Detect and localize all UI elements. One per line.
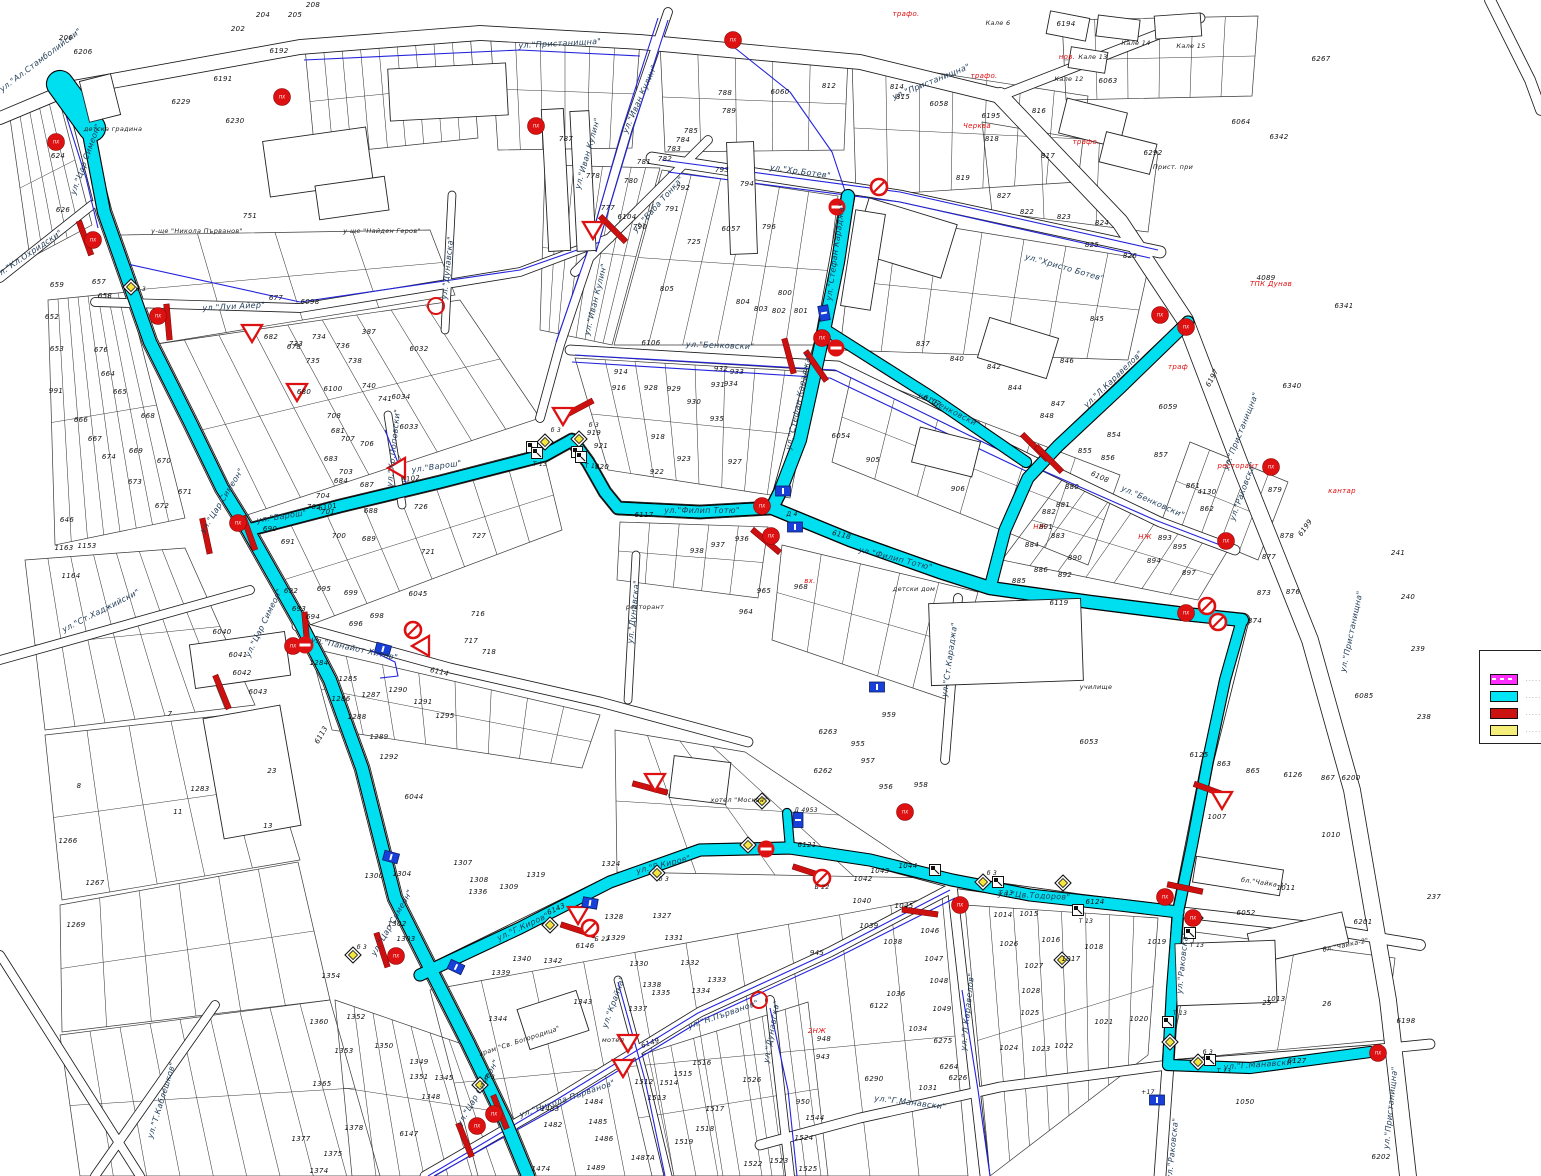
parcel-number-label: 1307 [453, 859, 472, 867]
parcel-number-label: 848 [1040, 412, 1055, 420]
hydrant-marker-label: ПХ [1162, 895, 1169, 901]
parcel-number-label: 814 [890, 83, 904, 91]
parcel-number-label: 819 [956, 174, 971, 182]
parcel-number-label: 1290 [388, 686, 407, 694]
parcel-number-label: 26 [1322, 1000, 1332, 1008]
road-surface [0, 955, 140, 1176]
parcel-number-label: 1292 [379, 753, 398, 761]
parcel-number-label: 700 [332, 532, 347, 540]
parcel-number-label: 1340 [512, 955, 531, 963]
utility-label-red: трафо. [892, 10, 919, 18]
street-name-label: ул."Филип Тотю" [663, 506, 740, 515]
parcel-number-label: 1302 [387, 920, 406, 928]
parcel-number-label: 682 [264, 333, 279, 341]
parcel-number-label: 672 [155, 502, 170, 510]
parcel-number-label: 1482 [543, 1121, 562, 1129]
parcel-number-label: 6033 [399, 423, 418, 431]
building [189, 632, 290, 689]
parcel-number-label: 6342 [1269, 133, 1288, 141]
parcel-number-label: 1327 [652, 912, 671, 920]
parcel-number-label: 725 [687, 238, 702, 246]
parcel-number-label: 1333 [707, 976, 726, 984]
parcel-number-label: 1163 [54, 544, 73, 552]
parcel-number-label: 885 [1012, 577, 1027, 585]
legend-row-route-type-4: .......... [1490, 722, 1541, 739]
parcel-number-label: 1034 [908, 1025, 927, 1033]
parcel-number-label: 862 [1200, 505, 1215, 513]
hydrant-marker-label: ПХ [393, 954, 400, 960]
parcel-number-label: 208 [306, 1, 321, 9]
symbol-code-label: Т 13 [1190, 942, 1204, 949]
parcel-number-label: 670 [157, 457, 172, 465]
parcel-number-label: 905 [866, 456, 881, 464]
parcel-number-label: 1042 [853, 875, 872, 883]
parcel-number-label: 840 [950, 355, 965, 363]
parcel-number-label: 738 [348, 357, 363, 365]
parcel-number-label: 1007 [1207, 813, 1226, 821]
parcel-number-label: 6108 [1090, 470, 1111, 485]
hydrant-marker-label: ПХ [759, 504, 766, 510]
parcel-number-label: 920 [595, 463, 610, 471]
parcel-number-label: 6113 [313, 725, 329, 745]
parcel-number-label: 1485 [588, 1118, 607, 1126]
parcel-number-label: 948 [817, 1035, 832, 1043]
parcel-number-label: 6045 [408, 590, 427, 598]
parcel-number-label: 664 [101, 370, 115, 378]
parcel-number-label: 837 [916, 340, 931, 348]
parcel-number-label: 1036 [886, 990, 905, 998]
building [541, 109, 570, 252]
parcel-number-label: 877 [1262, 553, 1277, 561]
parcel-number-label: 1483 [540, 1105, 559, 1113]
parcel-number-label: 1484 [584, 1098, 603, 1106]
parcel-number-label: 202 [231, 25, 246, 33]
parcel-number-label: 1164 [61, 572, 80, 580]
parcel-number-label: 863 [1217, 760, 1231, 768]
parcel-number-label: 1348 [421, 1093, 440, 1101]
parcel-number-label: 1338 [642, 981, 661, 989]
parcel-number-label: 894 [1147, 557, 1161, 565]
parcel-number-label: 751 [243, 212, 257, 220]
parcel-number-label: 855 [1078, 447, 1093, 455]
parcel-number-label: 812 [822, 82, 837, 90]
parcel-number-label: 6124 [1085, 898, 1104, 906]
parcel-number-label: 6201 [1353, 918, 1372, 926]
hydrant-box-icon [1156, 1097, 1158, 1103]
parcel-number-label: 1474 [531, 1165, 550, 1173]
parcel-number-label: 13 [263, 822, 273, 830]
yield-sign-icon [553, 408, 573, 425]
parcel-number-label: 6060 [770, 88, 789, 96]
map-svg[interactable]: ПХПХПХПХПХПХПХПХПХПХПХПХПХПХПХПХПХПХПХПХ… [0, 0, 1541, 1176]
parcel-number-label: 1365 [312, 1080, 331, 1088]
parcel-number-label: 1519 [674, 1138, 693, 1146]
parcel-block [965, 905, 1158, 1176]
parcel-number-label: 1266 [58, 837, 77, 845]
parcel-number-label: 856 [1101, 454, 1116, 462]
parcel-number-label: 1345 [434, 1074, 453, 1082]
parcel-number-label: 950 [796, 1098, 811, 1106]
hydrant-box-icon [782, 488, 784, 494]
parcel-number-label: 6040 [212, 628, 231, 636]
hydrant-marker-label: ПХ [1183, 611, 1190, 617]
parcel-number-label: 1017 [1061, 955, 1080, 963]
road-surface [1490, 0, 1541, 110]
parcel-number-label: 1377 [291, 1135, 310, 1143]
parcel-number-label: 1337 [628, 1005, 647, 1013]
parcel-number-label: 6194 [1056, 20, 1075, 28]
parcel-number-label: 1378 [344, 1124, 363, 1132]
parcel-number-label: 718 [482, 648, 497, 656]
parcel-number-label: 6117 [634, 511, 653, 519]
parcel-number-label: 4089 [1256, 274, 1275, 282]
parcel-number-label: 6230 [225, 117, 244, 125]
parcel-number-label: 826 [1123, 252, 1138, 260]
parcel-number-label: 646 [60, 516, 75, 524]
parcel-number-label: 6199 [1297, 518, 1315, 538]
parcel-number-label: 823 [1057, 213, 1071, 221]
parcel-number-label: 1522 [743, 1160, 762, 1168]
parcel-number-label: 1517 [705, 1105, 724, 1113]
parcel-number-label: 6202 [1371, 1153, 1390, 1161]
parcel-number-label: 1353 [334, 1047, 353, 1055]
parcel-line [848, 281, 1139, 310]
legend-label: .......... [1526, 728, 1541, 734]
map-viewport[interactable]: ПХПХПХПХПХПХПХПХПХПХПХПХПХПХПХПХПХПХПХПХ… [0, 0, 1541, 1176]
parcel-number-label: 804 [736, 298, 750, 306]
parcel-number-label: 6122 [869, 1002, 888, 1010]
parcel-number-label: 933 [730, 368, 744, 376]
street-name-label: ул."Бенковски" [685, 340, 755, 351]
parcel-number-label: 6034 [391, 393, 410, 401]
parcel-number-label: 6226 [948, 1074, 967, 1082]
parcel-number-label: 704 [316, 492, 330, 500]
parcel-number-label: 1351 [409, 1073, 428, 1081]
parcel-number-label: 1018 [1084, 943, 1103, 951]
symbol-code-label: б 3 [551, 427, 561, 434]
parcel-number-label: 6264 [939, 1063, 958, 1071]
landmark-label: детски дом [892, 585, 935, 593]
parcel-number-label: 701 [321, 508, 335, 516]
parcel-number-label: 1349 [409, 1058, 428, 1066]
parcel-number-label: 6058 [929, 100, 948, 108]
parcel-number-label: 6195 [981, 112, 1000, 120]
parcel-number-label: 788 [718, 89, 733, 97]
street-name-label: ул."Пристанищна" [1338, 590, 1364, 674]
parcel-number-label: 959 [882, 711, 897, 719]
parcel-number-label: 1046 [920, 927, 939, 935]
building [1096, 15, 1140, 41]
landmark-label: у-ще "Никола Първанов" [150, 227, 243, 235]
legend-swatch-dash [1492, 678, 1516, 680]
parcel-number-label: 240 [1401, 593, 1416, 601]
parcel-number-label: 674 [102, 453, 116, 461]
no-entry-sign-icon [761, 848, 772, 851]
parcel-number-label: 6267 [1311, 55, 1330, 63]
parcel-number-label: 6098 [300, 298, 319, 306]
parcel-number-label: 827 [997, 192, 1012, 200]
parcel-number-label: 1049 [932, 1005, 951, 1013]
parcel-number-label: 932 [714, 365, 729, 373]
utility-label-red: 2НЖ [808, 1027, 826, 1035]
utility-label-red: Черква [963, 122, 991, 130]
parcel-number-label: 6229 [171, 98, 190, 106]
legend-label: .......... [1526, 711, 1541, 717]
parcel-number-label: 687 [360, 481, 375, 489]
parcel-number-label: 707 [341, 435, 356, 443]
closure-bar-icon [782, 338, 797, 374]
parcel-number-label: 955 [851, 740, 866, 748]
hydrant-marker-label: ПХ [491, 1112, 498, 1118]
parcel-number-label: 6119 [1049, 599, 1068, 607]
parcel-number-label: 785 [684, 127, 699, 135]
parcel-number-label: 930 [687, 398, 702, 406]
utility-label-red: трафо. [970, 72, 997, 80]
parcel-number-label: 204 [256, 11, 270, 19]
parcel-number-label: 805 [660, 285, 675, 293]
symbol-code-label: Т 13 [533, 461, 547, 468]
legend-swatch-route-type-3 [1490, 708, 1518, 719]
parcel-number-label: 668 [141, 412, 156, 420]
parcel-number-label: 238 [1417, 713, 1432, 721]
landmark-label: училище [1079, 683, 1113, 691]
hydrant-marker-label: ПХ [533, 124, 540, 130]
parcel-number-label: 897 [1182, 569, 1197, 577]
parcel-number-label: 6032 [409, 345, 428, 353]
parcel-number-label: 957 [861, 757, 876, 765]
parcel-number-label: 6044 [404, 793, 423, 801]
parcel-number-label: 706 [360, 440, 375, 448]
parcel-number-label: 1486 [594, 1135, 613, 1143]
parcel-number-label: 6147 [399, 1130, 418, 1138]
parcel-number-label: 1328 [604, 913, 623, 921]
parcel-number-label: 1515 [673, 1070, 692, 1078]
parcel-number-label: 991 [49, 387, 63, 395]
parcel-number-label: 854 [1107, 431, 1121, 439]
street-name-label: ул."Дунавска" [440, 236, 456, 301]
parcel-number-label: 803 [754, 305, 768, 313]
parcel-number-label: 1020 [1129, 1015, 1148, 1023]
valve-box-icon [577, 453, 581, 457]
landmark-label: хотел "Москва" [710, 796, 768, 804]
parcel-number-label: 659 [50, 281, 65, 289]
parcel-number-label: 789 [722, 107, 737, 115]
parcel-number-label: 793 [715, 166, 729, 174]
parcel-number-label: 824 [1095, 219, 1109, 227]
parcel-number-label: 684 [334, 477, 348, 485]
parcel-number-label: 844 [1008, 384, 1022, 392]
parcel-number-label: 881 [1056, 501, 1070, 509]
parcel-number-label: 717 [464, 637, 479, 645]
hydrant-marker-label: ПХ [768, 534, 775, 540]
parcel-number-label: 1015 [1019, 910, 1038, 918]
landmark-label: Кале 15 [1176, 42, 1205, 50]
parcel-number-label: 6290 [864, 1075, 883, 1083]
parcel-number-label: 1525 [798, 1165, 817, 1173]
hydrant-marker-label: ПХ [1183, 325, 1190, 331]
symbol-code-label: б 3 [1203, 1049, 1213, 1056]
parcel-number-label: 716 [471, 610, 486, 618]
landmark-label: Кале 14 [1121, 39, 1150, 47]
parcel-number-label: 893 [1158, 534, 1172, 542]
parcel-number-label: 1047 [924, 955, 943, 963]
parcel-number-label: 796 [762, 223, 777, 231]
landmark-label: Кале 12 [1054, 75, 1083, 83]
parcel-number-label: 846 [1060, 357, 1075, 365]
parcel-line [978, 987, 1154, 1041]
parcel-number-label: 1289 [369, 733, 388, 741]
parcel-number-label: 1284 [309, 659, 328, 667]
hydrant-marker-label: ПХ [902, 810, 909, 816]
parcel-number-label: 23 [267, 767, 277, 775]
parcel-number-label: 6085 [1354, 692, 1373, 700]
parcel-number-label: 1360 [309, 1018, 328, 1026]
hydrant-marker-label: ПХ [1375, 1051, 1382, 1057]
utility-label-red: трафо. [1072, 138, 1099, 146]
no-entry-sign-icon [831, 347, 842, 350]
symbol-code-label: +17 [1141, 1089, 1155, 1096]
valve-box-icon [1074, 906, 1078, 910]
parcel-number-label: 692 [284, 587, 299, 595]
hydrant-marker-label: ПХ [957, 903, 964, 909]
parcel-number-label: 937 [711, 541, 726, 549]
parcel-number-label: 1040 [852, 897, 871, 905]
parcel-number-label: 1344 [488, 1015, 507, 1023]
parcel-number-label: 6292 [1143, 149, 1162, 157]
parcel-number-label: 938 [690, 547, 705, 555]
parcel-number-label: 1516 [692, 1059, 711, 1067]
parcel-number-label: 735 [306, 357, 321, 365]
parcel-number-label: 1044 [898, 862, 917, 870]
parcel-number-label: 387 [362, 328, 377, 336]
symbol-code-label: б 3 [485, 1074, 495, 1081]
hydrant-marker-label: ПХ [1157, 313, 1164, 319]
parcel-number-label: 1027 [1024, 962, 1043, 970]
parcel-number-label: 816 [1032, 107, 1047, 115]
parcel-number-label: 1011 [1276, 884, 1295, 892]
parcel-number-label: 1374 [309, 1167, 328, 1175]
building [203, 705, 301, 839]
parcel-number-label: 6127 [1287, 1057, 1306, 1065]
parcel-number-label: 652 [45, 313, 60, 321]
street-name-label: ул."Г.Киров" [495, 911, 550, 943]
hydrant-marker-label: ПХ [1268, 465, 1275, 471]
yield-sign-icon [1212, 792, 1232, 809]
parcel-number-label: 916 [612, 384, 627, 392]
parcel-number-label: 818 [985, 135, 1000, 143]
hydrant-marker-label: ПХ [90, 238, 97, 244]
parcel-number-label: 802 [772, 307, 787, 315]
parcel-number-label: 6054 [831, 432, 850, 440]
parcel-number-label: 1039 [859, 922, 878, 930]
symbol-code-label: Т 13 [1079, 918, 1093, 925]
building [1154, 13, 1201, 39]
parcel-number-label: 6341 [1334, 302, 1353, 310]
legend-label: .......... [1526, 694, 1541, 700]
legend-label: .......... [1526, 677, 1541, 683]
parcel-number-label: 958 [914, 781, 929, 789]
parcel-number-label: 653 [50, 345, 64, 353]
parcel-number-label: 801 [794, 307, 808, 315]
parcel-number-label: 1352 [346, 1013, 365, 1021]
parcel-number-label: 1335 [651, 989, 670, 997]
utility-label-red: нов. [1059, 53, 1075, 61]
parcel-number-label: 1308 [469, 876, 488, 884]
parcel-number-label: 919 [587, 429, 602, 437]
cyan-street [787, 813, 790, 848]
symbol-code-label: Б 22 [815, 884, 830, 891]
parcel-number-label: 895 [1173, 543, 1188, 551]
symbol-code-label: Т 13 [1173, 1010, 1187, 1017]
parcel-number-label: 876 [1286, 588, 1301, 596]
building [388, 63, 509, 121]
parcel-number-label: 886 [1034, 566, 1049, 574]
parcel-number-label: 6263 [818, 728, 837, 736]
parcel-number-label: 1024 [999, 1044, 1018, 1052]
parcel-line [663, 97, 847, 104]
parcel-number-label: 842 [987, 363, 1002, 371]
valve-box-icon [1206, 1056, 1210, 1060]
parcel-number-label: 1331 [664, 934, 683, 942]
parcel-number-label: 878 [1280, 532, 1295, 540]
parcel-block [832, 372, 1120, 565]
parcel-number-label: 6200 [1341, 774, 1360, 782]
parcel-number-label: 740 [362, 382, 377, 390]
parcel-number-label: 883 [1051, 532, 1065, 540]
parcel-number-label: 935 [710, 415, 725, 423]
parcel-number-label: 6126 [1283, 771, 1302, 779]
parcel-number-label: 914 [614, 368, 628, 376]
legend-swatch-route-type-1 [1490, 674, 1518, 685]
parcel-number-label: 698 [370, 612, 385, 620]
building [727, 142, 758, 255]
parcel-number-label: 825 [1085, 241, 1100, 249]
parcel-number-label: 890 [1068, 554, 1083, 562]
parcel-number-label: 778 [586, 172, 601, 180]
parcel-number-label: 906 [951, 485, 966, 493]
parcel-number-label: 777 [601, 204, 616, 212]
parcel-number-label: 880 [1065, 483, 1080, 491]
hydrant-box-icon [876, 684, 878, 690]
parcel-number-label: 1291 [413, 698, 432, 706]
parcel-number-label: 1295 [435, 712, 454, 720]
parcel-line [191, 359, 500, 433]
parcel-number-label: 690 [263, 525, 278, 533]
parcel-number-label: 791 [665, 205, 679, 213]
valve-box-icon [994, 878, 998, 882]
valve-box-icon [528, 443, 532, 447]
parcel-block [150, 300, 540, 520]
hydrant-marker-label: ПХ [819, 336, 826, 342]
parcel-line [61, 931, 314, 969]
parcel-number-label: 1518 [695, 1125, 714, 1133]
parcel-number-label: 6191 [213, 75, 232, 83]
hydrant-marker-label: ПХ [235, 521, 242, 527]
parcel-number-label: 11 [173, 808, 183, 816]
parcel-number-label: 882 [1042, 508, 1057, 516]
parcel-number-label: 1350 [374, 1042, 393, 1050]
parcel-number-label: 934 [724, 380, 738, 388]
parcel-number-label: 1330 [629, 960, 648, 968]
hydrant-marker-label: ПХ [474, 1124, 481, 1130]
parcel-number-label: 923 [677, 455, 691, 463]
parcel-number-label: 734 [312, 333, 326, 341]
parcel-number-label: 945 [810, 949, 825, 957]
parcel-number-label: 6106 [641, 339, 660, 347]
parcel-number-label: 6064 [1231, 118, 1250, 126]
parcel-number-label: 665 [113, 388, 128, 396]
parcel-number-label: 1285 [338, 675, 357, 683]
